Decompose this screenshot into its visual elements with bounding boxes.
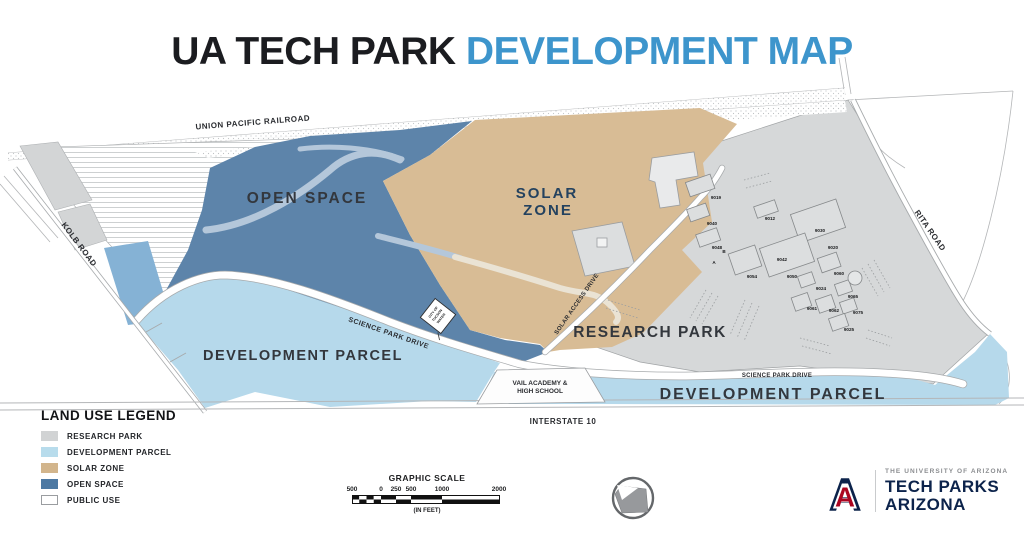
building-number-label: 9061: [807, 306, 818, 311]
building-number-label: 9040: [707, 221, 718, 226]
legend-item-open-space: OPEN SPACE: [41, 479, 176, 489]
legend-item-solar-zone: SOLAR ZONE: [41, 463, 176, 473]
university-of-arizona-block-a-icon: A A A: [822, 468, 868, 514]
vail-academy-label-line2: HIGH SCHOOL: [517, 388, 563, 395]
scale-tick: 2000: [492, 486, 506, 493]
building-number-label: 9054: [747, 274, 758, 279]
svg-text:A: A: [835, 482, 855, 513]
building-number-label: 9060: [834, 271, 845, 276]
solar-zone-label-line2: ZONE: [523, 202, 573, 219]
legend-title: LAND USE LEGEND: [41, 408, 176, 423]
logo-institution: THE UNIVERSITY OF ARIZONA: [885, 468, 1008, 475]
solar-zone-swatch: [41, 463, 58, 473]
open-space-swatch: [41, 479, 58, 489]
scale-bar: [352, 495, 502, 506]
development-parcel-swatch: [41, 447, 58, 457]
public-use-swatch: [41, 495, 58, 505]
development-parcel-east-label: DEVELOPMENT PARCEL: [660, 386, 887, 403]
page: UA TECH PARK DEVELOPMENT MAP: [0, 0, 1024, 535]
tech-parks-arizona-logo: A A A THE UNIVERSITY OF ARIZONA TECH PAR…: [822, 468, 1008, 514]
building-number-label: 9019: [711, 195, 722, 200]
legend-label: PUBLIC USE: [67, 496, 120, 505]
building-number-label: 9062: [829, 308, 840, 313]
science-park-drive-south-label: SCIENCE PARK DRIVE: [742, 373, 812, 379]
legend-label: SOLAR ZONE: [67, 464, 124, 473]
legend-label: RESEARCH PARK: [67, 432, 143, 441]
building-number-label: 9020: [828, 245, 839, 250]
research-park-swatch: [41, 431, 58, 441]
building-number-label: 9025: [844, 327, 855, 332]
scale-tick: 500: [347, 486, 358, 493]
logo-name-line1: TECH PARKS: [885, 478, 1008, 496]
scale-units: (IN FEET): [414, 508, 441, 514]
interstate-10-label: INTERSTATE 10: [530, 417, 597, 426]
research-park-label: RESEARCH PARK: [573, 324, 727, 341]
building-number-label: 9048: [712, 245, 723, 250]
legend-label: DEVELOPMENT PARCEL: [67, 448, 171, 457]
graphic-scale-title: GRAPHIC SCALE: [389, 473, 466, 483]
building-number-label: 9075: [853, 310, 864, 315]
open-space-label: OPEN SPACE: [247, 190, 368, 207]
building-number-label: 9030: [815, 228, 826, 233]
solar-zone-label-line1: SOLAR: [516, 185, 579, 202]
building-number-label: 9065: [848, 294, 859, 299]
scale-tick: 1000: [435, 486, 449, 493]
scale-tick: 250: [391, 486, 402, 493]
legend-item-public-use: PUBLIC USE: [41, 495, 176, 505]
scale-tick: 0: [379, 486, 383, 493]
vail-academy-label-line1: VAIL ACADEMY &: [512, 380, 567, 387]
legend-label: OPEN SPACE: [67, 480, 124, 489]
building-number-label: 9042: [777, 257, 788, 262]
logo-divider: [875, 470, 876, 512]
building-number-label: 9012: [765, 216, 776, 221]
logo-name-line2: ARIZONA: [885, 496, 1008, 514]
scale-tick: 500: [406, 486, 417, 493]
legend-item-research-park: RESEARCH PARK: [41, 431, 176, 441]
development-parcel-west-label: DEVELOPMENT PARCEL: [203, 348, 403, 364]
land-use-legend: LAND USE LEGEND RESEARCH PARK DEVELOPMEN…: [41, 408, 176, 505]
building-number-label: 9050: [787, 274, 798, 279]
graphic-scale: GRAPHIC SCALE 500 0 250 500 1000 2000 (I…: [340, 473, 516, 521]
legend-item-development-parcel: DEVELOPMENT PARCEL: [41, 447, 176, 457]
north-arrow-icon: [613, 478, 653, 518]
union-pacific-railroad-label: UNION PACIFIC RAILROAD: [195, 114, 310, 132]
building-number-label: 9024: [816, 286, 827, 291]
